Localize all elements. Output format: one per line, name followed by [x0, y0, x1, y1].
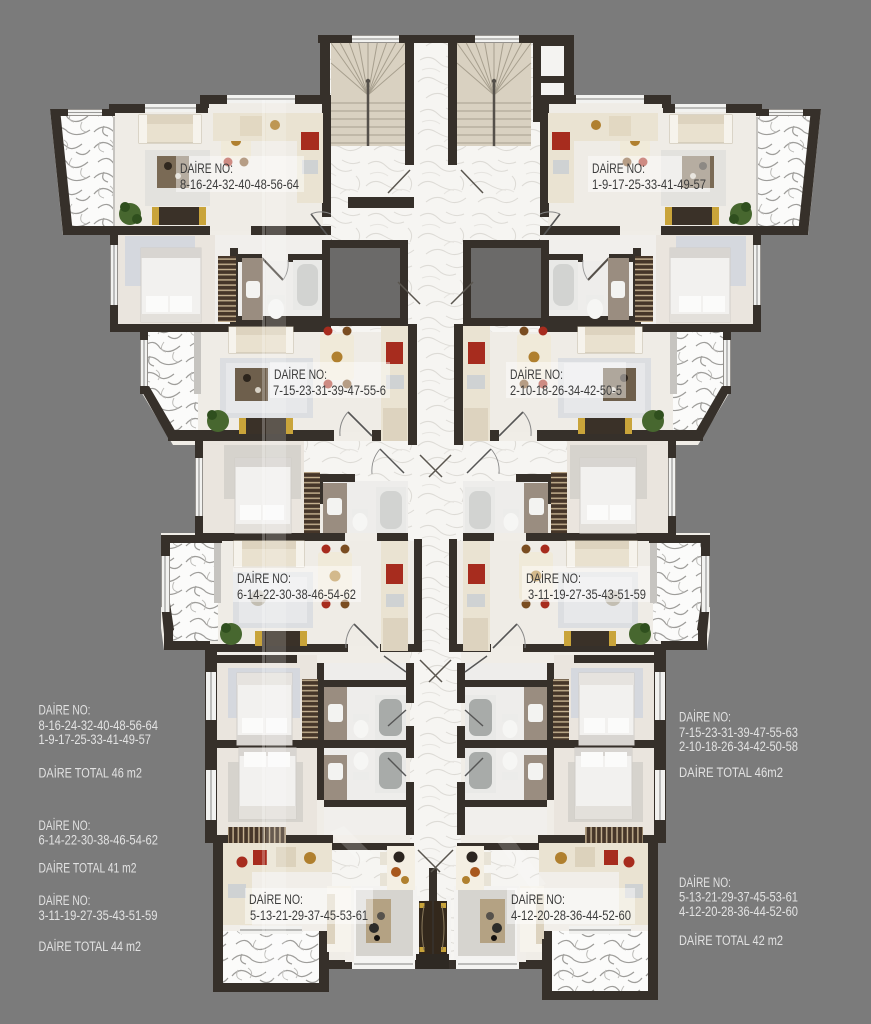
svg-text:DAİRE NO:: DAİRE NO:: [180, 161, 233, 176]
svg-text:2-10-18-26-34-42-50-5: 2-10-18-26-34-42-50-5: [510, 383, 622, 398]
svg-text:5-13-21-29-37-45-53-61: 5-13-21-29-37-45-53-61: [250, 908, 368, 923]
svg-text:8-16-24-32-40-48-56-64: 8-16-24-32-40-48-56-64: [180, 177, 299, 192]
svg-text:DAİRE NO:: DAİRE NO:: [511, 892, 565, 907]
svg-text:6-14-22-30-38-46-54-62: 6-14-22-30-38-46-54-62: [237, 587, 356, 602]
svg-text:5-13-21-29-37-45-53-61: 5-13-21-29-37-45-53-61: [679, 890, 798, 905]
svg-text:DAİRE NO:: DAİRE NO:: [249, 892, 303, 907]
svg-text:DAİRE NO:: DAİRE NO:: [679, 875, 731, 890]
svg-text:6-14-22-30-38-46-54-62: 6-14-22-30-38-46-54-62: [39, 833, 159, 848]
svg-text:DAİRE TOTAL 41 m2: DAİRE TOTAL 41 m2: [39, 861, 137, 876]
svg-text:DAİRE NO:: DAİRE NO:: [679, 710, 731, 725]
svg-text:DAİRE NO:: DAİRE NO:: [237, 571, 291, 586]
svg-text:DAİRE TOTAL 44 m2: DAİRE TOTAL 44 m2: [39, 939, 142, 954]
svg-text:DAİRE NO:: DAİRE NO:: [592, 161, 645, 176]
svg-text:DAİRE NO:: DAİRE NO:: [526, 571, 581, 586]
svg-text:DAİRE NO:: DAİRE NO:: [39, 703, 91, 718]
svg-text:DAİRE NO:: DAİRE NO:: [39, 893, 91, 908]
svg-text:DAİRE NO:: DAİRE NO:: [39, 818, 91, 833]
svg-text:1-9-17-25-33-41-49-57: 1-9-17-25-33-41-49-57: [39, 732, 152, 747]
svg-text:3-11-19-27-35-43-51-59: 3-11-19-27-35-43-51-59: [528, 587, 646, 602]
svg-text:2-10-18-26-34-42-50-58: 2-10-18-26-34-42-50-58: [679, 739, 798, 754]
svg-text:1-9-17-25-33-41-49-57: 1-9-17-25-33-41-49-57: [592, 177, 706, 192]
svg-text:DAİRE TOTAL 46 m2: DAİRE TOTAL 46 m2: [39, 766, 143, 781]
svg-text:DAİRE TOTAL 42 m2: DAİRE TOTAL 42 m2: [679, 933, 783, 948]
svg-text:7-15-23-31-39-47-55-6: 7-15-23-31-39-47-55-6: [273, 383, 386, 398]
svg-text:8-16-24-32-40-48-56-64: 8-16-24-32-40-48-56-64: [39, 718, 159, 733]
svg-text:3-11-19-27-35-43-51-59: 3-11-19-27-35-43-51-59: [39, 908, 158, 923]
svg-text:4-12-20-28-36-44-52-60: 4-12-20-28-36-44-52-60: [679, 904, 798, 919]
svg-text:DAİRE NO:: DAİRE NO:: [274, 367, 327, 382]
svg-text:DAİRE NO:: DAİRE NO:: [510, 367, 563, 382]
svg-text:DAİRE TOTAL 46m2: DAİRE TOTAL 46m2: [679, 765, 783, 780]
svg-text:7-15-23-31-39-47-55-63: 7-15-23-31-39-47-55-63: [679, 725, 798, 740]
svg-text:4-12-20-28-36-44-52-60: 4-12-20-28-36-44-52-60: [511, 908, 631, 923]
